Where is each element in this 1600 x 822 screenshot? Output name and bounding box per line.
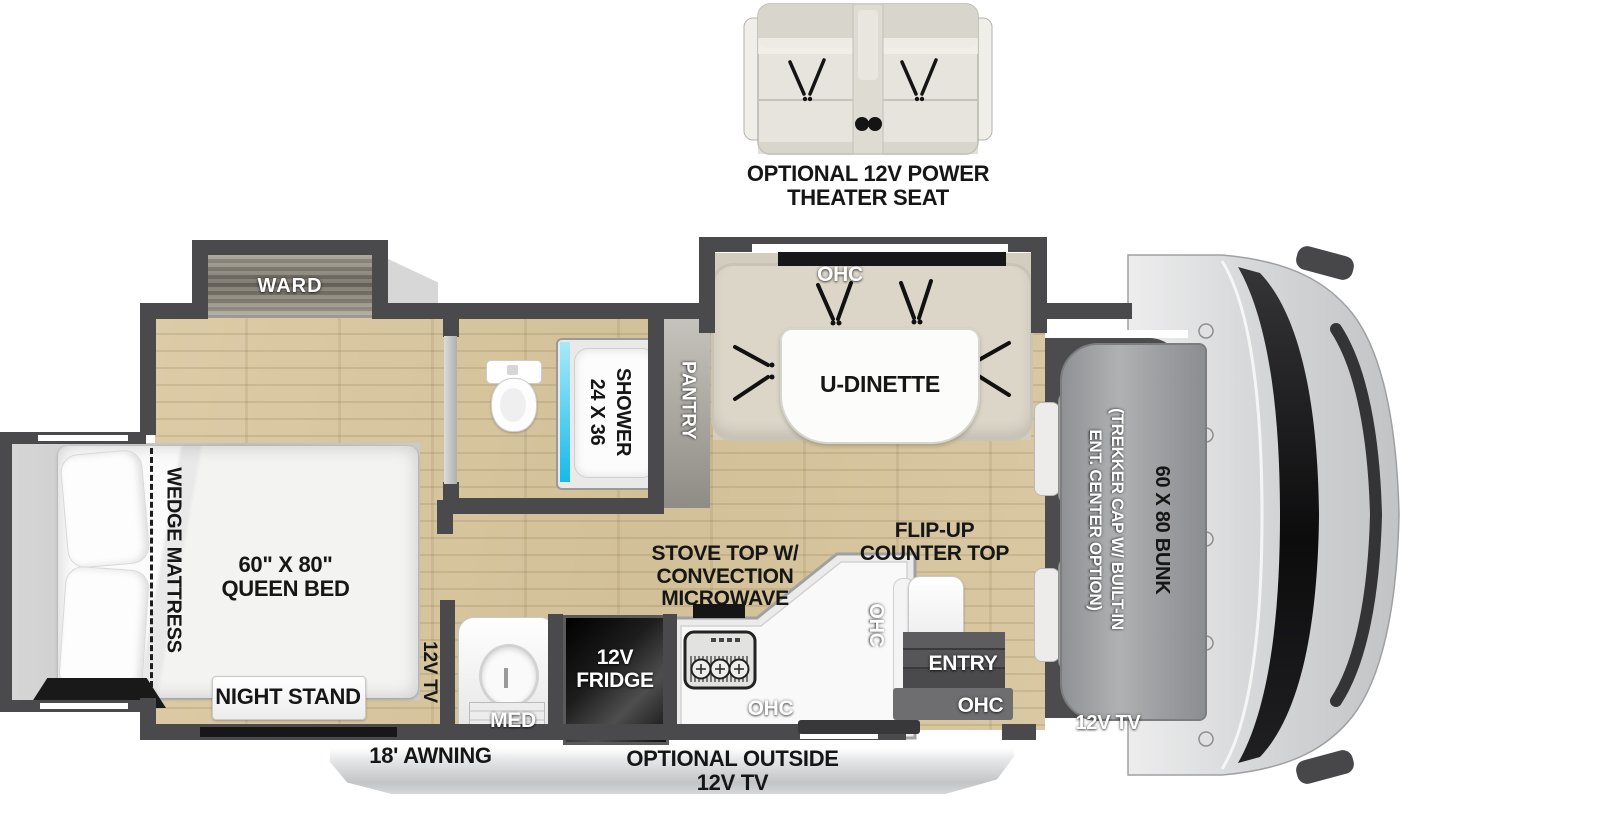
- pantry-label: PANTRY: [677, 331, 698, 471]
- window-slide-top: [38, 435, 128, 441]
- awning-label: 18' AWNING: [348, 742, 513, 770]
- pillow-bottom: [58, 565, 150, 695]
- dinette-ohc-label: OHC: [805, 262, 875, 288]
- wall-bottom-stub: [1002, 724, 1036, 740]
- rv-floorplan: OPTIONAL 12V POWER THEATER SEAT 18' AW: [0, 0, 1600, 822]
- window-bottom-bedroom: [200, 727, 397, 737]
- bunk-size-label: 60 X 80 BUNK: [1149, 435, 1173, 625]
- bedroom-tv-label: 12V TV: [419, 632, 439, 712]
- flip-up-label: FLIP-UP COUNTER TOP: [852, 518, 1017, 568]
- theater-seat-label: OPTIONAL 12V POWER THEATER SEAT: [740, 160, 996, 212]
- wall-bed-foot: [437, 500, 453, 534]
- wall-top-mid: [385, 303, 703, 319]
- sink-icon: [479, 644, 539, 708]
- wall-med-left: [440, 600, 455, 740]
- entry-label: ENTRY: [913, 652, 1013, 676]
- wall-bath-south: [443, 498, 664, 514]
- wall-left-upper: [140, 303, 156, 435]
- window-slide-bottom: [40, 703, 128, 709]
- trekker-cap-label-line1: (TREKKER CAP W/ BUILT-IN: [1106, 379, 1128, 659]
- front-tv-label: 12V TV: [1058, 712, 1158, 736]
- u-dinette-label: U-DINETTE: [790, 370, 970, 398]
- stove-icon: [683, 630, 757, 690]
- bunk-panel: [1060, 343, 1207, 721]
- entry-ohc-label: OHC: [938, 694, 1023, 718]
- pillow-top: [59, 449, 151, 570]
- wedge-fold-line: [150, 448, 153, 696]
- theater-seat-label-line2: THEATER SEAT: [787, 186, 949, 210]
- trekker-cap-label-line2: ENT. CENTER OPTION): [1085, 405, 1105, 635]
- ward-label: WARD: [208, 255, 372, 318]
- shower-size-label: 24 X 36: [585, 352, 607, 472]
- queen-bed-label: 60" X 80" QUEEN BED: [198, 550, 373, 604]
- wall-top-right: [1032, 303, 1132, 319]
- pocket-door: [444, 336, 457, 484]
- theater-seat-illustration: [742, 2, 994, 156]
- stove-label: STOVE TOP W/ CONVECTION MICROWAVE: [640, 540, 810, 614]
- wedge-mattress-label: WEDGE MATTRESS: [162, 458, 184, 663]
- outside-tv-label: OPTIONAL OUTSIDE 12V TV: [625, 748, 840, 794]
- window-sill-dinette: [752, 244, 1008, 252]
- med-label: MED: [473, 708, 553, 734]
- window-sill-front: [1048, 330, 1188, 338]
- entry-mat: [798, 720, 920, 734]
- kitchen-ohc-label: OHC: [728, 696, 813, 722]
- wall-slide-left: [0, 432, 12, 712]
- shower-label: SHOWER: [611, 352, 633, 472]
- night-stand-label: NIGHT STAND: [212, 682, 364, 712]
- shower-glass: [560, 342, 570, 482]
- fridge-label: 12V FRIDGE: [563, 640, 667, 700]
- wall-bath-west-top: [443, 319, 459, 337]
- wall-shower-east: [648, 319, 664, 514]
- toilet-icon: [486, 360, 540, 432]
- theater-seat-label-line1: OPTIONAL 12V POWER: [747, 162, 989, 186]
- counter-ohc-label: OHC: [864, 589, 886, 661]
- wall-ward-top: [192, 240, 388, 255]
